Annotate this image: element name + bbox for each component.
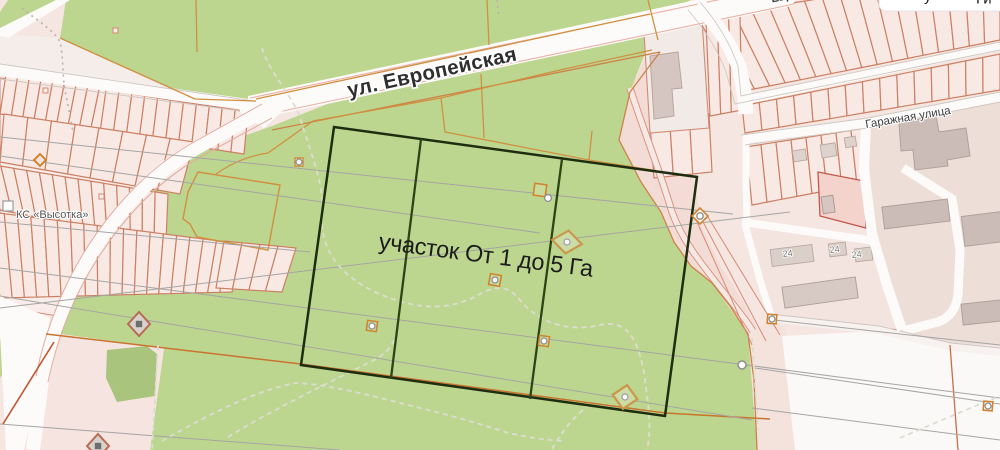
svg-text:у: у: [924, 0, 932, 5]
svg-text:Ги: Ги: [976, 0, 992, 8]
svg-text:КС «Высотка»: КС «Высотка»: [16, 209, 88, 221]
svg-text:24: 24: [782, 248, 793, 259]
svg-text:24: 24: [829, 244, 840, 255]
svg-text:24: 24: [851, 249, 862, 260]
